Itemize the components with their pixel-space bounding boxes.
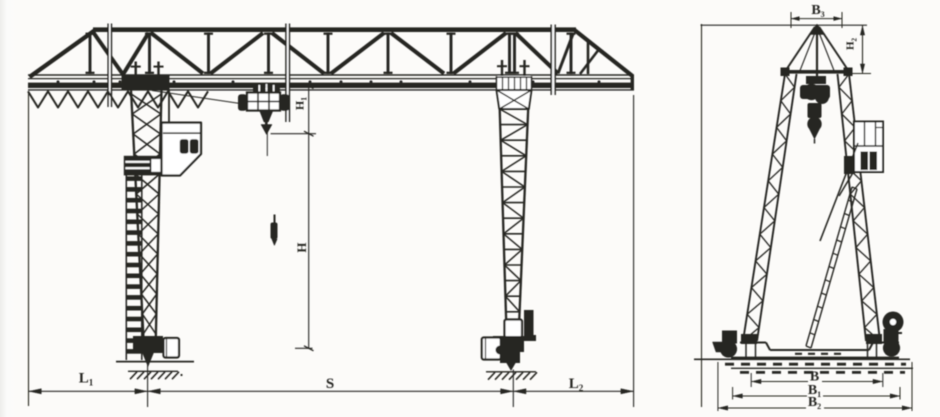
svg-text:L2: L2 xyxy=(569,376,584,393)
svg-text:H: H xyxy=(294,243,309,253)
svg-text:H1: H1 xyxy=(293,97,309,110)
svg-text:B3: B3 xyxy=(811,3,824,19)
svg-text:S: S xyxy=(326,376,334,392)
svg-text:L1: L1 xyxy=(79,371,94,388)
svg-text:H2: H2 xyxy=(845,37,859,50)
